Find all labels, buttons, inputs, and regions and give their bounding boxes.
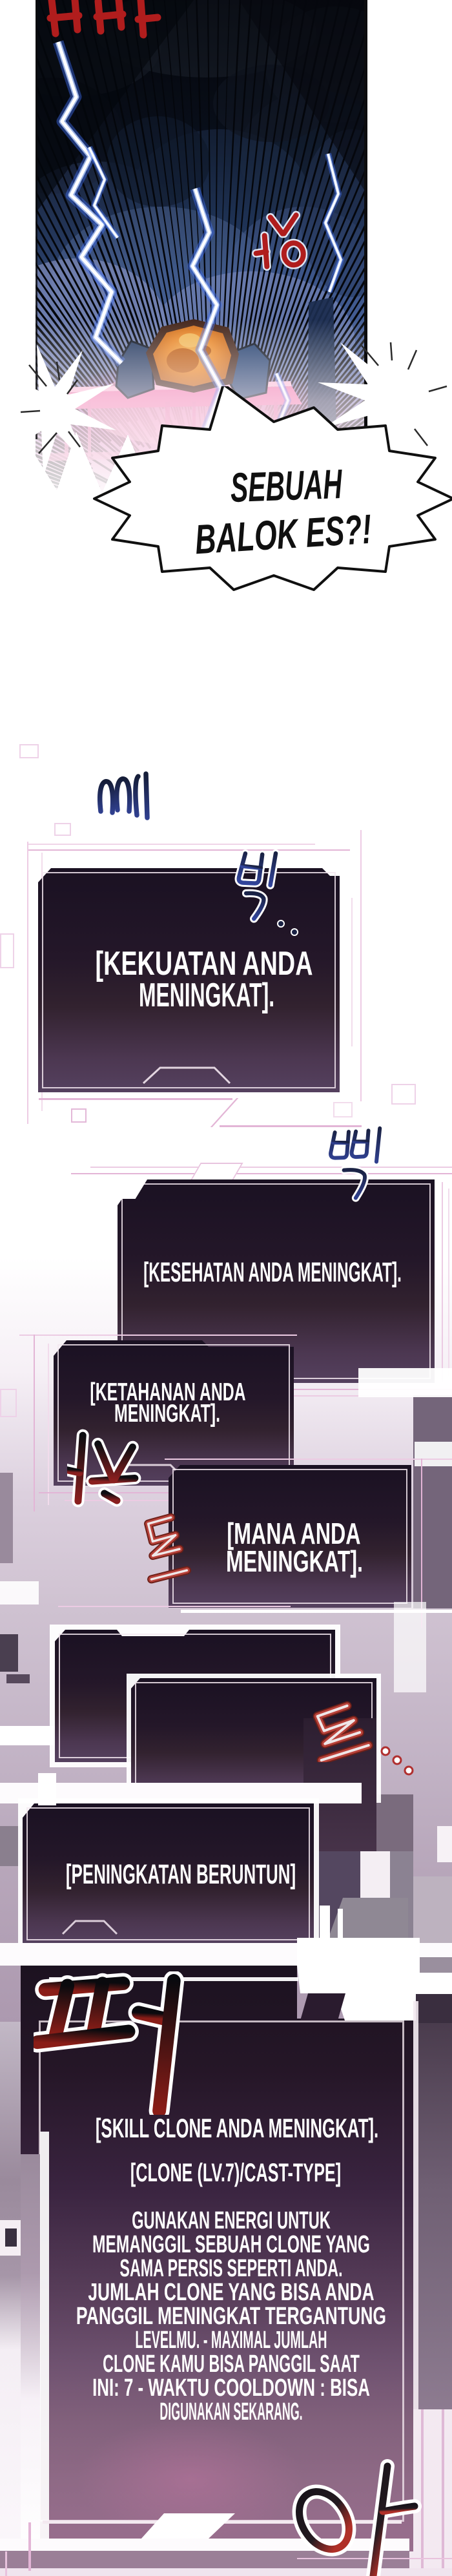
svg-text:SEBUAH: SEBUAH bbox=[230, 461, 344, 511]
